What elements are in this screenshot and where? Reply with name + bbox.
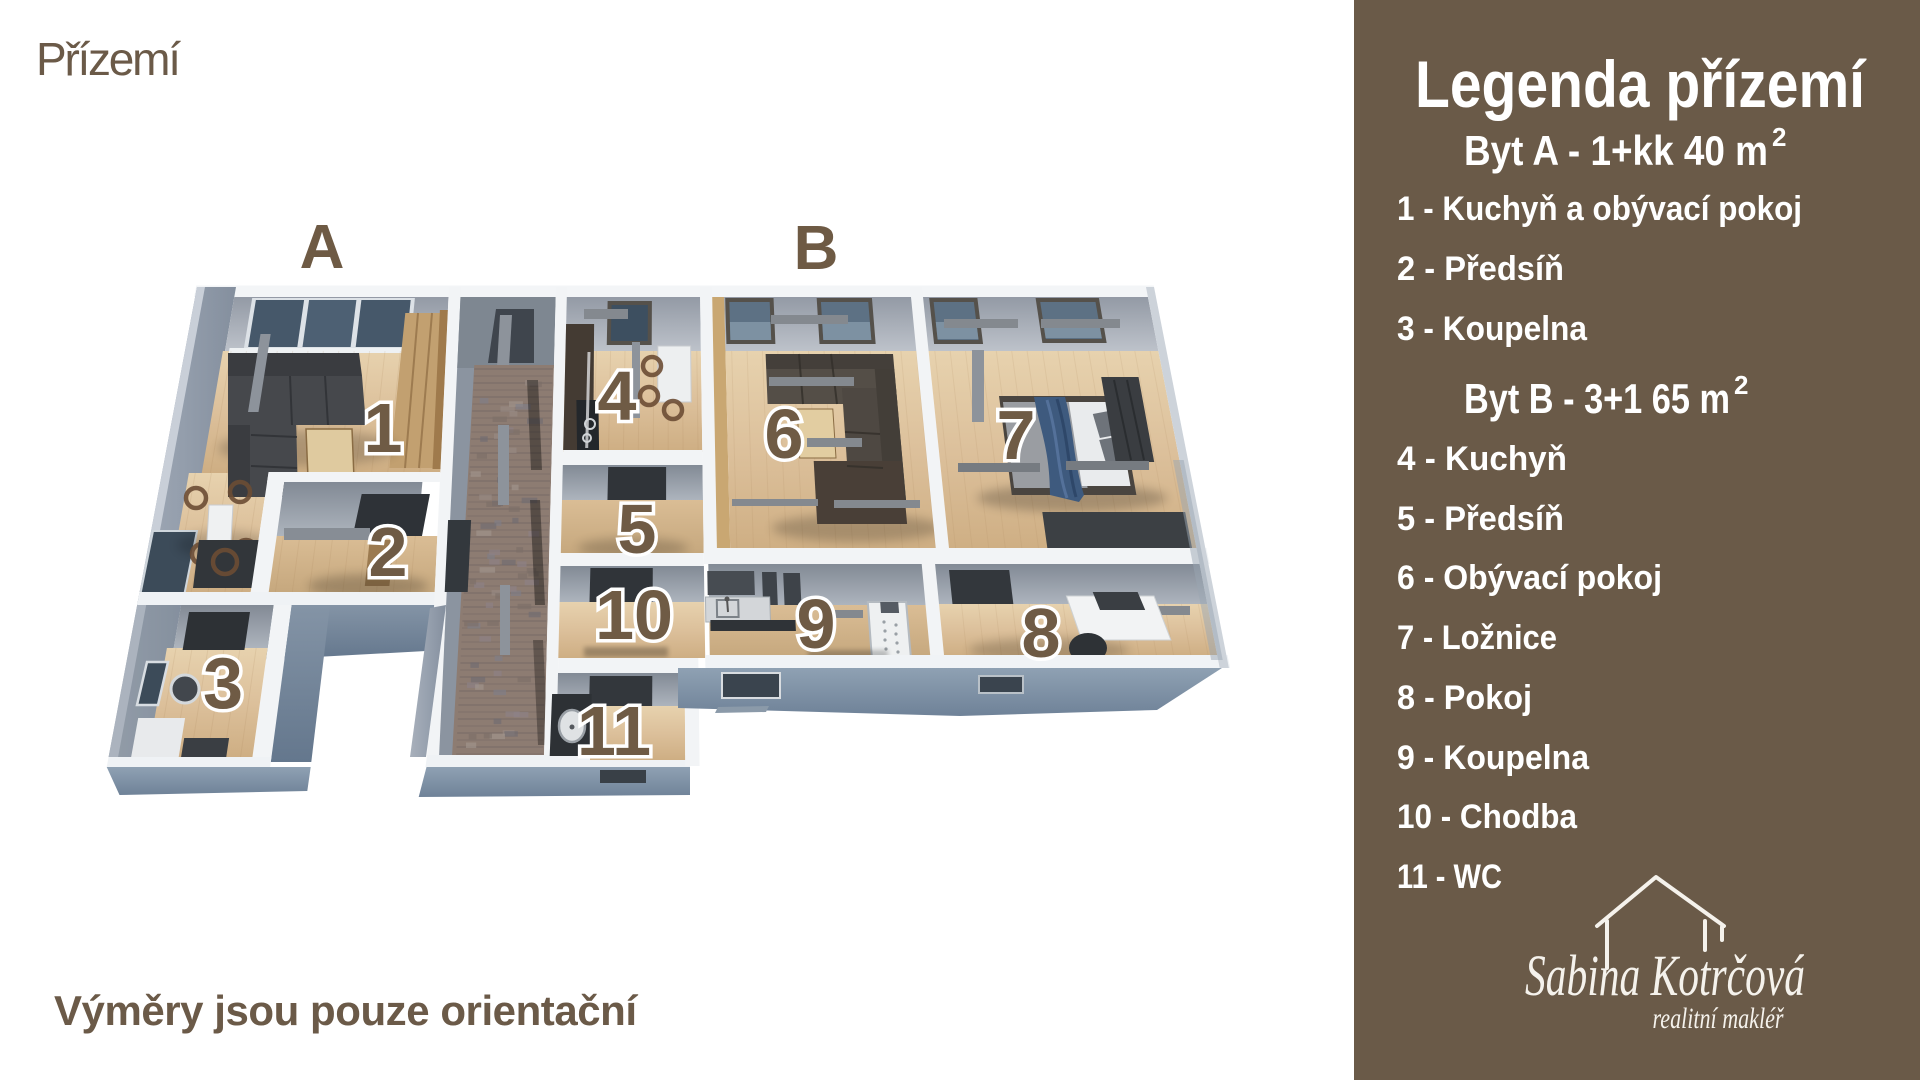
svg-text:9: 9 [797, 585, 836, 663]
svg-text:11 - WC: 11 - WC [1397, 858, 1502, 896]
svg-text:6 - Obývací pokoj: 6 - Obývací pokoj [1397, 559, 1662, 597]
svg-text:7 - Ložnice: 7 - Ložnice [1397, 619, 1557, 657]
svg-text:2: 2 [369, 513, 408, 591]
svg-text:6: 6 [765, 395, 804, 473]
svg-text:5: 5 [618, 490, 657, 568]
svg-text:B: B [794, 214, 839, 283]
svg-text:8: 8 [1022, 594, 1061, 672]
svg-text:Výměry jsou pouze orientační: Výměry jsou pouze orientační [54, 987, 638, 1034]
svg-text:3 - Koupelna: 3 - Koupelna [1397, 310, 1588, 348]
svg-text:8 - Pokoj: 8 - Pokoj [1397, 679, 1532, 717]
svg-text:1: 1 [364, 389, 403, 467]
svg-text:Přízemí: Přízemí [36, 33, 181, 85]
svg-text:2: 2 [1734, 370, 1748, 400]
svg-text:4: 4 [598, 357, 637, 435]
svg-text:11: 11 [577, 692, 651, 770]
svg-text:9 - Koupelna: 9 - Koupelna [1397, 739, 1590, 777]
svg-text:2 - Předsíň: 2 - Předsíň [1397, 250, 1564, 288]
svg-text:10 - Chodba: 10 - Chodba [1397, 798, 1578, 836]
svg-text:3: 3 [203, 644, 243, 724]
svg-text:Byt A - 1+kk 40 m: Byt A - 1+kk 40 m [1464, 127, 1768, 174]
svg-text:10: 10 [595, 576, 673, 654]
svg-text:Sabina Kotrčová: Sabina Kotrčová [1525, 943, 1805, 1008]
svg-text:2: 2 [1772, 122, 1786, 152]
svg-text:A: A [300, 213, 345, 282]
svg-text:5 - Předsíň: 5 - Předsíň [1397, 500, 1564, 538]
svg-text:1 - Kuchyň a obývací pokoj: 1 - Kuchyň a obývací pokoj [1397, 190, 1802, 228]
svg-text:Byt B - 3+1 65 m: Byt B - 3+1 65 m [1464, 375, 1730, 422]
svg-text:7: 7 [997, 396, 1036, 474]
svg-text:realitní makléř: realitní makléř [1653, 1002, 1785, 1035]
svg-text:4 - Kuchyň: 4 - Kuchyň [1397, 440, 1567, 478]
svg-text:Legenda přízemí: Legenda přízemí [1415, 47, 1867, 121]
